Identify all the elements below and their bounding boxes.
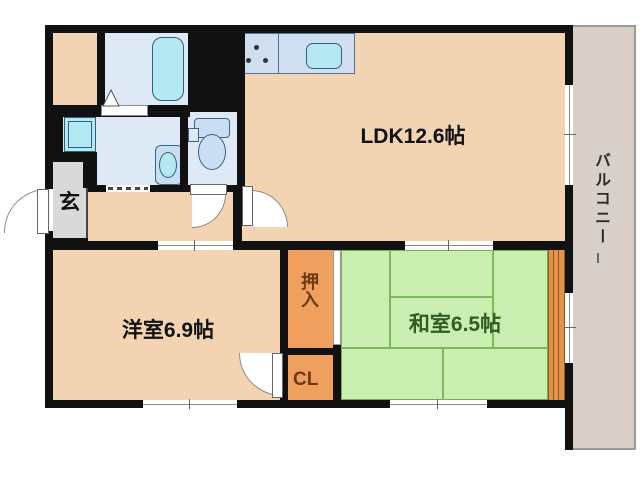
wall — [83, 152, 97, 188]
japanese-room-label: 和室6.5帖 — [355, 308, 555, 338]
wall — [233, 186, 242, 250]
vanity-basin-icon — [159, 152, 177, 178]
toilet-handle-icon — [188, 128, 199, 142]
balcony-label: バルコニー — [588, 152, 612, 312]
wall — [280, 348, 341, 355]
wall — [493, 241, 573, 250]
wood-edge-line — [558, 250, 559, 400]
wall — [333, 355, 341, 408]
washing-machine-inner — [68, 121, 92, 148]
wall — [565, 363, 573, 450]
entrance-door-leaf — [37, 189, 49, 234]
washroom-threshold-dashes — [108, 187, 148, 190]
stove-burner-icon — [254, 45, 259, 50]
wall — [45, 231, 53, 408]
wall — [565, 25, 573, 85]
wall — [233, 241, 405, 250]
sliding-door-fusuma — [333, 250, 341, 345]
wall — [565, 185, 573, 293]
tatami-line — [341, 347, 548, 349]
wall — [487, 400, 573, 408]
toilet-bowl-icon — [198, 134, 226, 170]
kitchen-sink-icon — [306, 43, 342, 69]
oshiire-label: 押入 — [296, 272, 322, 332]
wall — [237, 112, 245, 192]
cl-label: CL — [293, 369, 318, 391]
cl-door-leaf — [272, 353, 283, 398]
wall — [45, 238, 88, 250]
wall — [188, 32, 245, 112]
wall — [180, 112, 188, 192]
tatami-line — [389, 296, 494, 298]
entrance-label: 玄 — [59, 186, 80, 216]
wall — [237, 400, 390, 408]
wall — [45, 400, 143, 408]
toilet-door-leaf — [190, 184, 227, 195]
kitchen-counter-divider — [278, 33, 279, 74]
stove-burner-icon — [246, 58, 251, 63]
wall — [45, 25, 573, 33]
tatami-line — [442, 349, 444, 400]
bathtub-icon — [152, 37, 184, 101]
bathroom-folding-door-icon — [101, 88, 121, 108]
stove-burner-icon — [263, 58, 268, 63]
ldk-label: LDK12.6帖 — [313, 120, 513, 150]
western-room-label: 洋室6.9帖 — [68, 314, 268, 344]
floor-plan: バルコニー 玄 押入 CL — [0, 0, 640, 480]
balcony-partition-mark — [597, 253, 599, 263]
ldk-door-leaf — [242, 186, 253, 226]
